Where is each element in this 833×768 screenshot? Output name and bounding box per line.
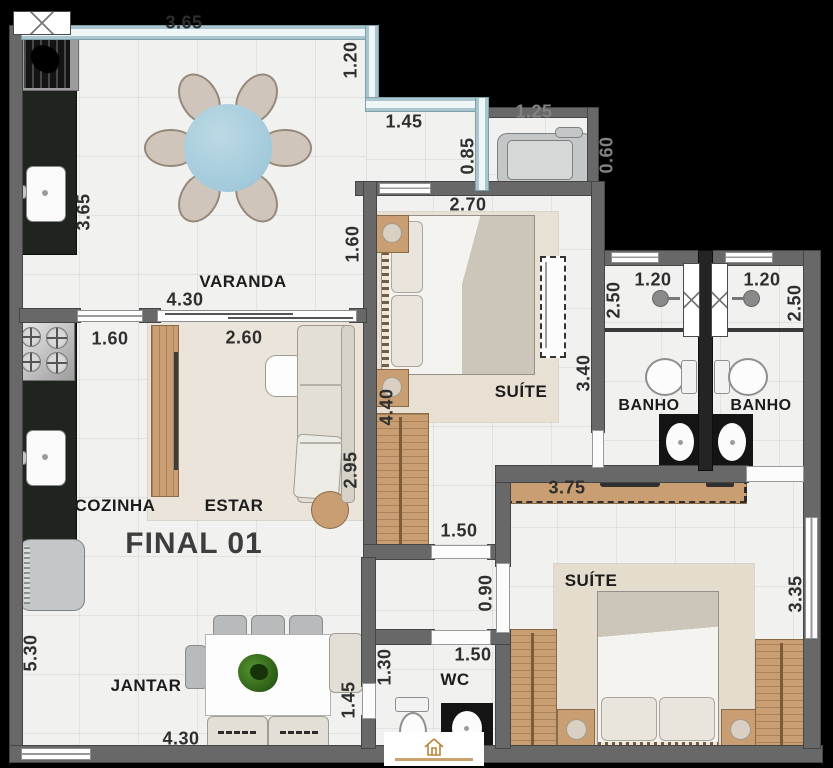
dim-jantar-door: 1.45 xyxy=(339,681,360,718)
pillow xyxy=(602,698,656,740)
hall-door xyxy=(432,546,490,558)
toilet-tank xyxy=(395,697,429,712)
wall xyxy=(364,182,376,558)
dim-suite2-depth: 3.35 xyxy=(786,575,807,612)
room-label-banho1: BANHO xyxy=(618,397,679,415)
room-label-banho2: BANHO xyxy=(730,397,791,415)
dim-varanda-depth: 3.65 xyxy=(74,193,95,230)
bench-stitch xyxy=(218,731,256,734)
dim-hall-width: 0.90 xyxy=(476,574,497,611)
toilet-tank xyxy=(681,360,697,394)
wall xyxy=(364,545,434,559)
sofa-chaise xyxy=(294,435,342,500)
jantar-window xyxy=(22,749,90,759)
dim-closet: 3.40 xyxy=(574,354,595,391)
wc-door xyxy=(432,631,490,644)
banho2-door xyxy=(747,467,803,481)
house-icon xyxy=(424,738,444,756)
suite2-blanket xyxy=(598,592,718,646)
lamp-icon xyxy=(731,720,750,739)
room-label-wc: WC xyxy=(440,670,469,690)
dim-ac-width: 1.25 xyxy=(515,102,552,123)
wall xyxy=(496,630,510,748)
glass-wall xyxy=(366,98,486,111)
jantar-opening xyxy=(363,684,375,718)
dim-cozinha-width: 1.60 xyxy=(91,329,128,350)
suite1-closet-dashed xyxy=(540,256,566,358)
dim-jantar-width: 4.30 xyxy=(162,729,199,750)
dim-banho2-depth: 2.50 xyxy=(785,284,806,321)
wall xyxy=(20,309,80,322)
shower-head-icon xyxy=(653,291,668,306)
toilet xyxy=(728,358,768,396)
dim-banho2-width: 1.20 xyxy=(743,270,780,291)
dim-ac-depth: 0.60 xyxy=(597,136,618,173)
shower-arm xyxy=(667,297,680,300)
round-glass-table xyxy=(184,104,272,192)
dim-step-width: 1.45 xyxy=(385,112,422,133)
dim-jantar-depth: 5.30 xyxy=(21,634,42,671)
dim-hall-door: 1.50 xyxy=(440,521,477,542)
wardrobe-divider xyxy=(399,417,402,545)
suite2-window xyxy=(806,518,817,638)
lamp-icon xyxy=(567,720,586,739)
pillow xyxy=(392,296,422,366)
dim-wc-depth: 1.30 xyxy=(375,648,396,685)
wall-shaft-core xyxy=(699,251,712,470)
closet-mirror xyxy=(545,262,547,348)
floorplan: 3.65 3.65 1.20 1.45 0.85 1.25 0.60 2.70 … xyxy=(0,0,833,768)
banho1-window xyxy=(612,253,658,262)
suite1-blanket xyxy=(462,216,534,374)
banho2-window xyxy=(726,253,772,262)
dim-varanda-right: 1.20 xyxy=(341,41,362,78)
dim-banho1-width: 1.20 xyxy=(634,270,671,291)
room-label-estar: ESTAR xyxy=(205,496,264,516)
ac-pipe xyxy=(556,128,582,137)
dim-varanda-door: 1.60 xyxy=(343,225,364,262)
sink-drain xyxy=(42,454,48,460)
dining-chair xyxy=(290,616,322,636)
tv-icon xyxy=(174,352,178,470)
bench-stitch xyxy=(280,731,318,734)
suite2-door xyxy=(497,564,509,632)
dim-estar-width: 2.60 xyxy=(225,328,262,349)
wall xyxy=(362,716,375,748)
kitchen-pass-window xyxy=(78,311,142,321)
duct-shaft xyxy=(14,12,70,34)
wall xyxy=(804,251,820,748)
unit-title: FINAL 01 xyxy=(125,527,262,561)
lamp-icon xyxy=(383,224,401,242)
room-label-varanda: VARANDA xyxy=(199,272,286,292)
burner-icon xyxy=(46,352,68,374)
pillow xyxy=(660,698,714,740)
sliding-panel xyxy=(165,313,293,315)
wardrobe-divider xyxy=(531,633,534,745)
wall xyxy=(592,182,604,432)
dining-chair xyxy=(186,646,206,688)
burner-icon xyxy=(21,327,41,347)
basin-drain xyxy=(730,440,735,445)
realtor-logo xyxy=(384,732,484,766)
dim-estar-depth: 2.95 xyxy=(341,451,362,488)
dim-banho1-depth: 2.50 xyxy=(604,281,625,318)
room-label-suite2: SUÍTE xyxy=(565,571,618,591)
dim-suite1-depth: 4.40 xyxy=(377,388,398,425)
duct-shaft xyxy=(712,264,727,336)
dining-chair xyxy=(214,616,246,636)
wardrobe-divider xyxy=(780,643,783,747)
dining-chair xyxy=(252,616,284,636)
wall xyxy=(362,558,375,686)
fridge-coil xyxy=(24,546,30,604)
sofa-cushion-line xyxy=(300,384,342,386)
room-label-suite1: SUÍTE xyxy=(495,382,548,402)
shower-head-icon xyxy=(744,291,759,306)
burner-icon xyxy=(46,327,68,349)
dim-step-height: 0.85 xyxy=(458,137,479,174)
shower-arm xyxy=(732,297,745,300)
sofa-cushion-line xyxy=(300,442,342,444)
desk-pen xyxy=(706,482,734,487)
duct-shaft xyxy=(684,264,699,336)
basin-drain xyxy=(464,726,469,731)
logo-text-bar xyxy=(395,758,473,761)
room-label-jantar: JANTAR xyxy=(111,676,182,696)
wall xyxy=(140,309,160,322)
banho1-door xyxy=(593,431,603,467)
basin-drain xyxy=(678,440,683,445)
wall xyxy=(488,630,510,644)
dim-suite1-width: 2.70 xyxy=(449,195,486,216)
toilet xyxy=(645,358,685,396)
shower-glass xyxy=(727,328,804,332)
shower-glass xyxy=(604,328,684,332)
ac-condenser-grille xyxy=(508,141,572,179)
sliding-panel xyxy=(228,317,353,319)
dim-wc-width: 1.50 xyxy=(454,645,491,666)
burner-icon xyxy=(21,352,41,372)
sink-drain xyxy=(42,190,48,196)
plant-center xyxy=(250,664,268,680)
suite1-window xyxy=(380,184,430,193)
dim-estar-door: 4.30 xyxy=(166,290,203,311)
dim-desk: 3.75 xyxy=(548,478,585,499)
room-label-cozinha: COZINHA xyxy=(75,496,156,516)
dim-varanda-width: 3.65 xyxy=(165,13,202,34)
